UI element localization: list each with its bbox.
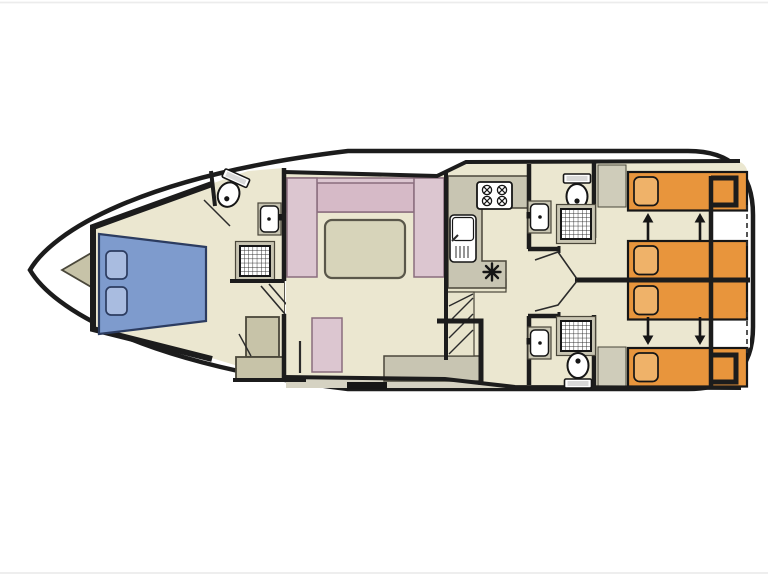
washbasin-icon [527, 201, 552, 233]
cabinet [236, 357, 283, 381]
shower-icon [557, 205, 596, 244]
sofa-right [414, 178, 444, 277]
washbasin-icon [527, 327, 552, 359]
shelf [598, 165, 626, 207]
hob-icon [477, 182, 512, 209]
washbasin-icon [258, 203, 283, 235]
stern-gap [712, 211, 750, 241]
boat-floor-plan-page [0, 0, 768, 576]
burner-icon [497, 185, 506, 194]
toilet-icon [564, 174, 591, 209]
saloon-table [325, 220, 405, 278]
single-bed [628, 281, 747, 320]
pillow [106, 251, 127, 279]
sofa-top-cushion [317, 183, 414, 212]
stern-gap [712, 320, 750, 348]
double-bed [99, 234, 206, 334]
shower-icon [236, 242, 275, 281]
burner-icon [482, 185, 491, 194]
shelf [598, 347, 626, 387]
burner-icon [497, 196, 506, 205]
wardrobe [246, 317, 279, 357]
toilet-icon [565, 353, 592, 388]
single-bed [628, 241, 747, 280]
entry-door-bar [347, 382, 387, 390]
shower-icon [557, 317, 596, 356]
sofa-left [287, 178, 317, 277]
heater-star-icon [484, 264, 501, 281]
boat-deck-plan [0, 0, 768, 576]
pillow [106, 287, 127, 315]
saloon-seat [312, 318, 342, 372]
burner-icon [482, 196, 491, 205]
